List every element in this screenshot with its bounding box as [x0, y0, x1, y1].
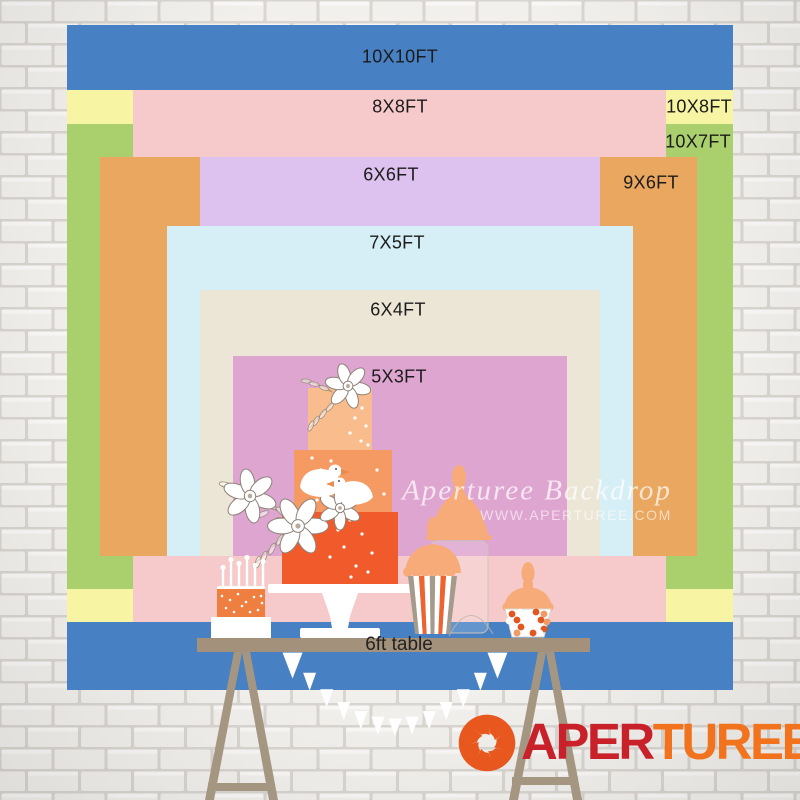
aperture-icon	[455, 708, 519, 776]
table-size-label: 6ft table	[365, 634, 433, 656]
watermark-brand-text: Aperturee Backdrop	[402, 475, 672, 508]
backdrop-size-chart-image: 10X10FT10X8FT10X7FT8X8FT9X6FT6X6FT7X5FT6…	[0, 0, 800, 800]
logo-text-right: TUREE	[653, 713, 800, 770]
size-label-6x6ft: 6X6FT	[363, 165, 419, 186]
size-label-5x3ft: 5X3FT	[371, 367, 427, 388]
size-label-10x7ft: 10X7FT	[665, 132, 731, 153]
size-label-9x6ft: 9X6FT	[623, 173, 679, 194]
watermark-url-text: WWW.APERTUREE.COM	[480, 507, 672, 523]
size-label-8x8ft: 8X8FT	[372, 97, 428, 118]
aperturee-logo: APERTUREE	[455, 708, 800, 776]
size-label-7x5ft: 7X5FT	[369, 233, 425, 254]
logo-wordmark: APERTUREE	[521, 716, 800, 767]
size-label-10x8ft: 10X8FT	[666, 97, 732, 118]
size-label-10x10ft: 10X10FT	[362, 47, 438, 68]
size-label-6x4ft: 6X4FT	[370, 300, 426, 321]
size-comparison-chart: 10X10FT10X8FT10X7FT8X8FT9X6FT6X6FT7X5FT6…	[0, 0, 800, 800]
logo-text-left: APER	[521, 713, 653, 770]
